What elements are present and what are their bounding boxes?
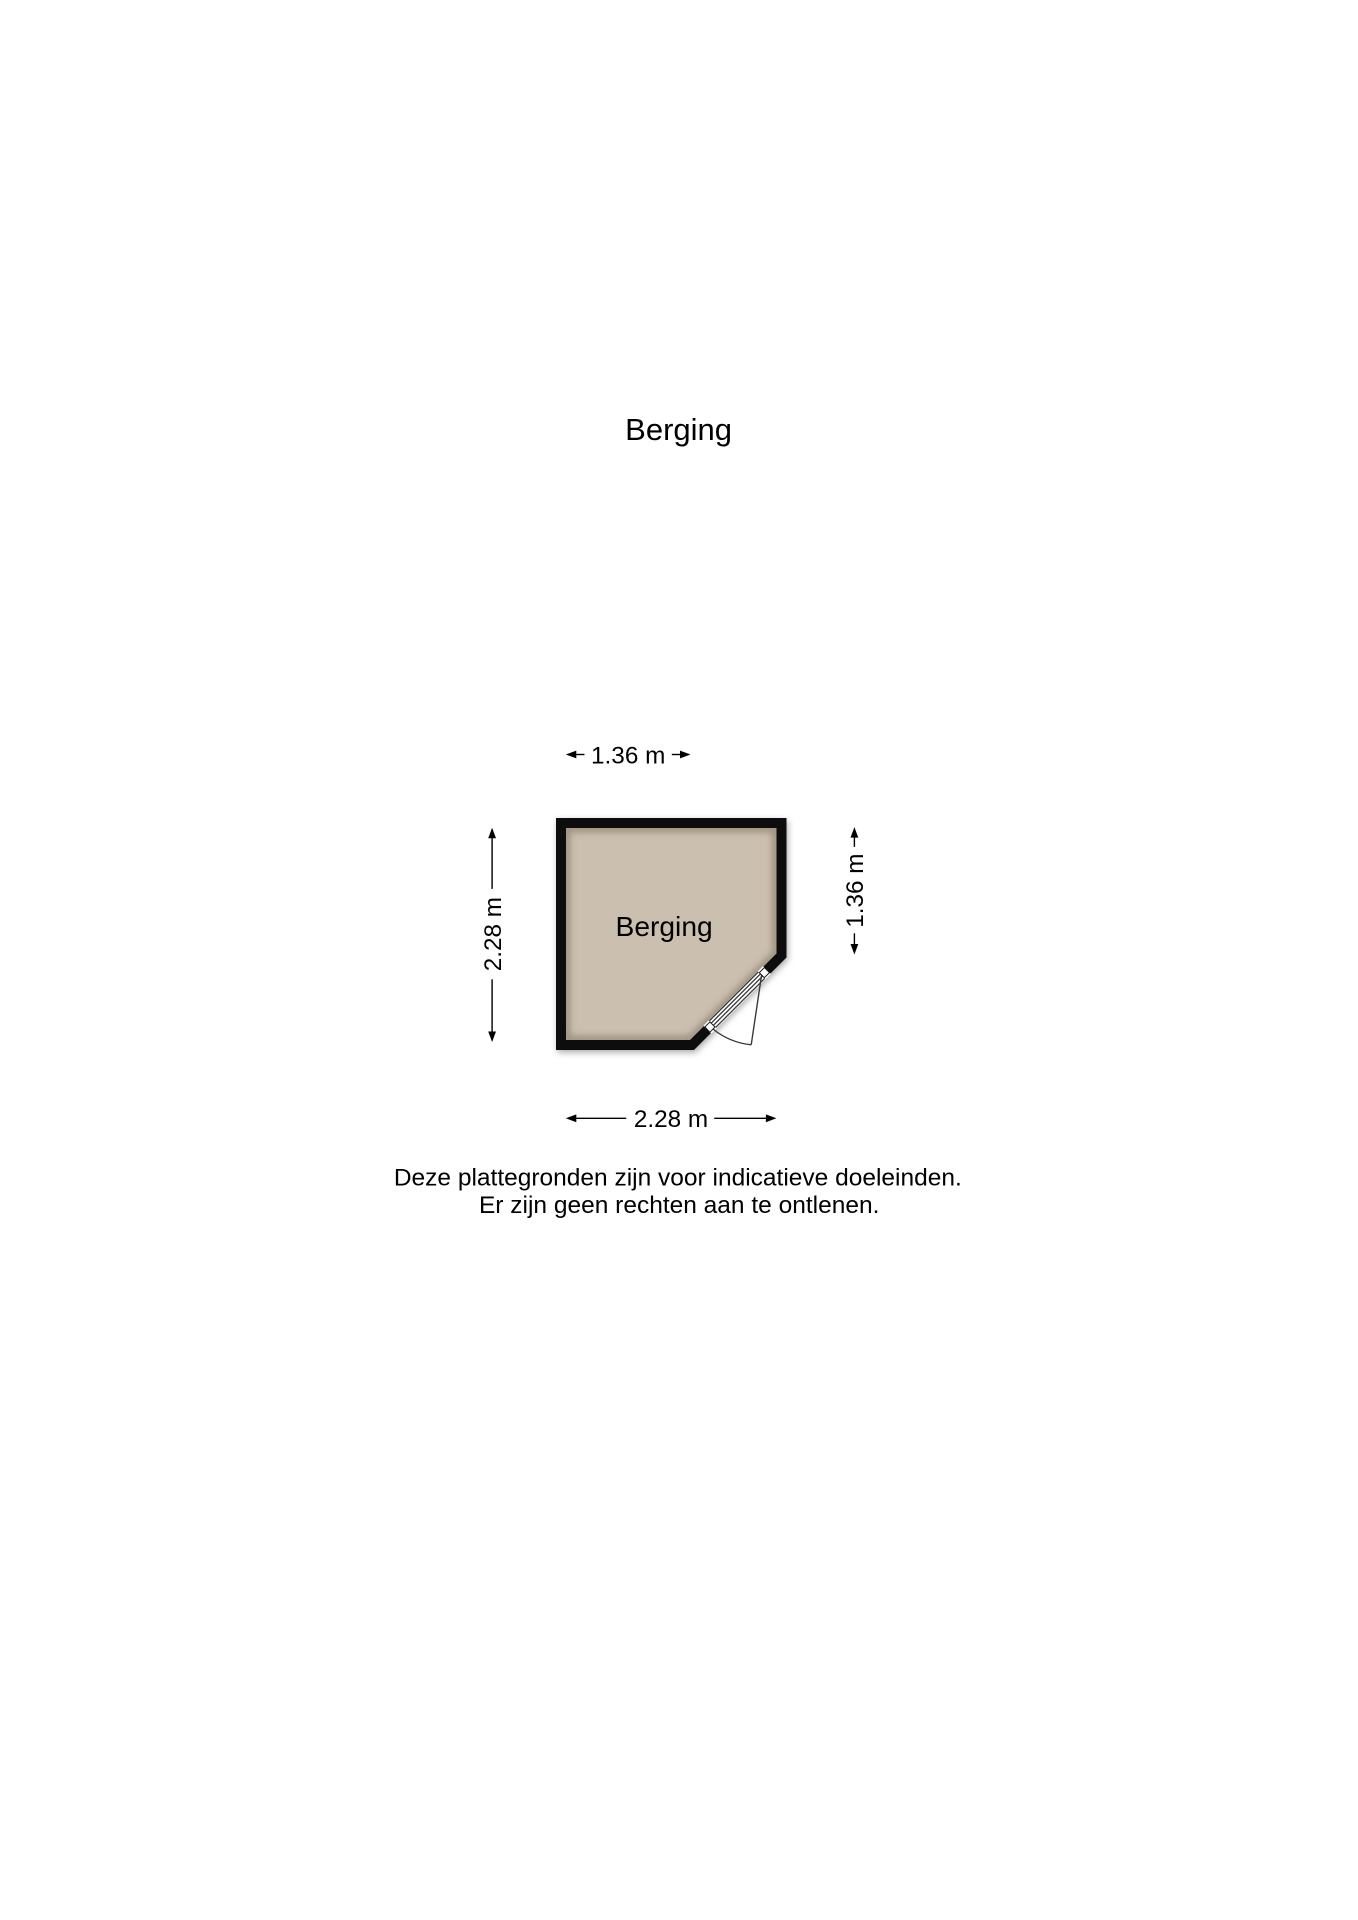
svg-text:Er zijn geen rechten aan te on: Er zijn geen rechten aan te ontlenen.	[479, 1192, 879, 1219]
svg-text:Berging: Berging	[625, 412, 732, 447]
svg-text:2.28 m: 2.28 m	[634, 1106, 708, 1133]
svg-text:Berging: Berging	[616, 910, 713, 942]
svg-text:2.28 m: 2.28 m	[480, 897, 507, 971]
svg-text:Deze plattegronden zijn voor i: Deze plattegronden zijn voor indicatieve…	[394, 1164, 962, 1191]
svg-text:1.36 m: 1.36 m	[842, 853, 869, 927]
svg-text:1.36 m: 1.36 m	[591, 742, 665, 769]
